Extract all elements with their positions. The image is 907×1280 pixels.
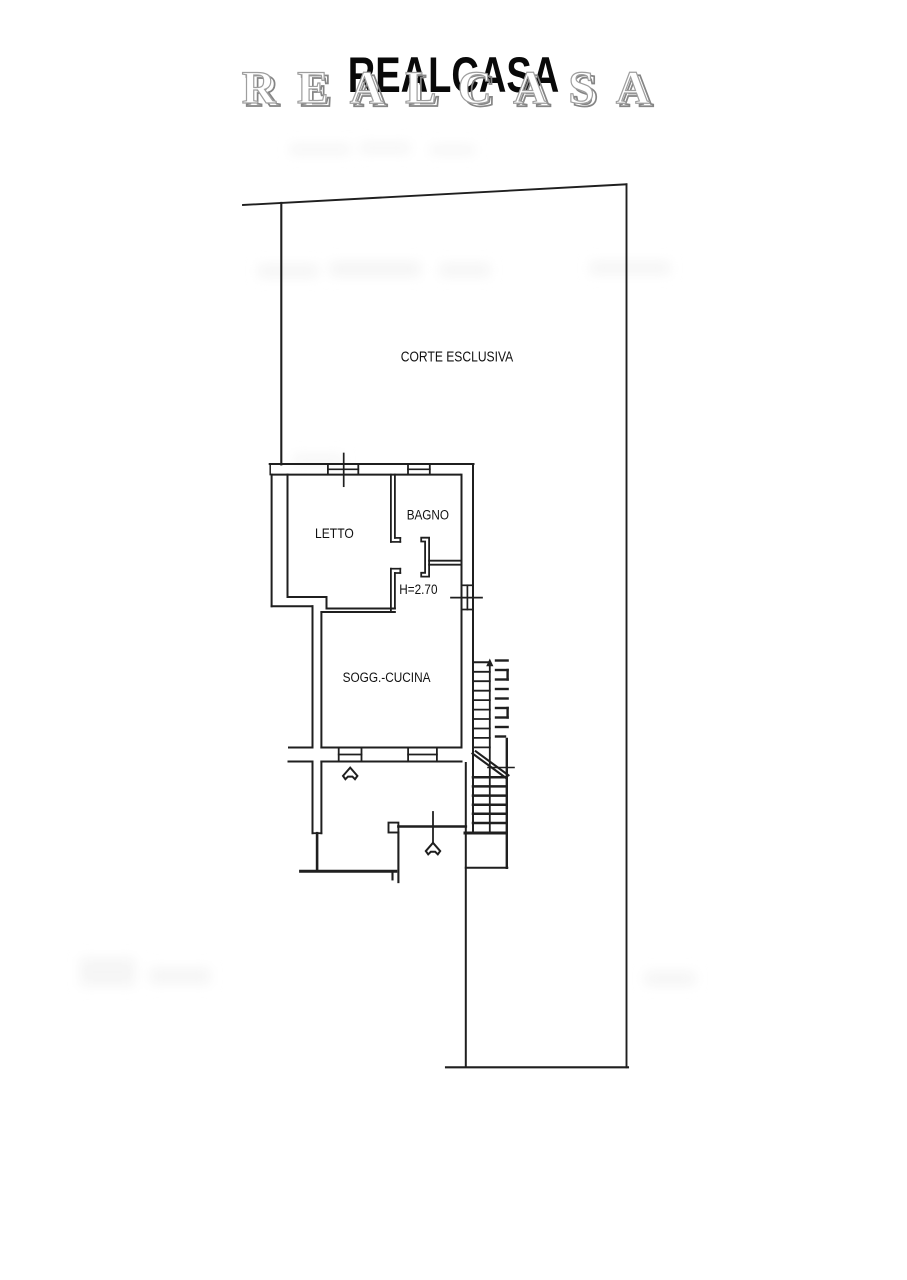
svg-text:REALCASA: REALCASA: [242, 62, 669, 114]
svg-text:H=2.70: H=2.70: [399, 582, 438, 597]
svg-text:CORTE ESCLUSIVA: CORTE ESCLUSIVA: [401, 349, 513, 366]
svg-text:BAGNO: BAGNO: [407, 508, 449, 523]
svg-text:LETTO: LETTO: [315, 526, 354, 541]
svg-text:SOGG.-CUCINA: SOGG.-CUCINA: [343, 670, 431, 685]
